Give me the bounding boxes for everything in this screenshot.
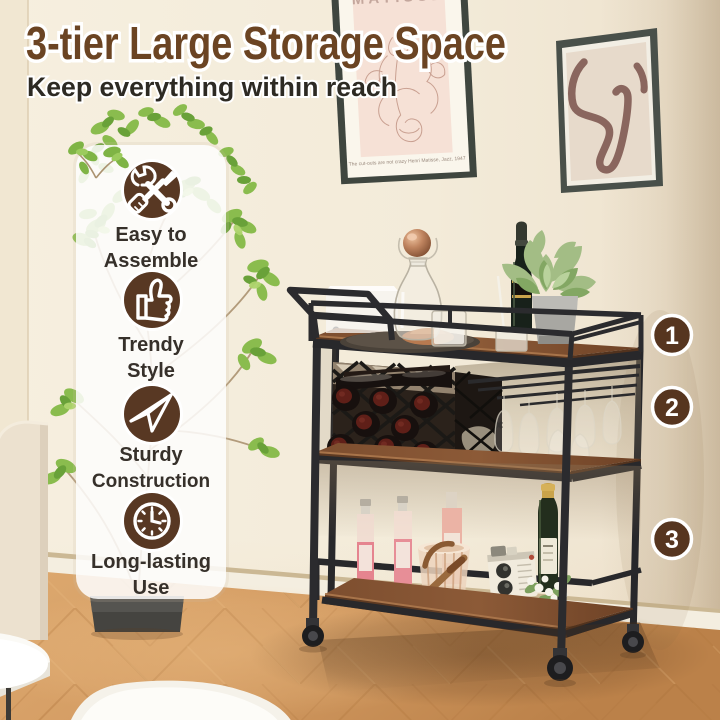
svg-text:Long-lasting: Long-lasting <box>91 551 211 573</box>
svg-text:Assemble: Assemble <box>104 250 199 272</box>
svg-text:Trendy: Trendy <box>118 334 184 356</box>
svg-text:2: 2 <box>665 394 679 422</box>
svg-text:1: 1 <box>665 322 679 350</box>
svg-text:3: 3 <box>665 526 679 554</box>
svg-text:Style: Style <box>127 360 175 382</box>
svg-text:Use: Use <box>133 577 170 599</box>
svg-text:Construction: Construction <box>92 471 210 492</box>
svg-text:3-tier Large Storage Space: 3-tier Large Storage Space <box>26 17 506 69</box>
svg-text:Sturdy: Sturdy <box>119 444 183 466</box>
svg-text:Easy to: Easy to <box>115 224 186 246</box>
svg-text:Keep everything within reach: Keep everything within reach <box>27 72 397 102</box>
